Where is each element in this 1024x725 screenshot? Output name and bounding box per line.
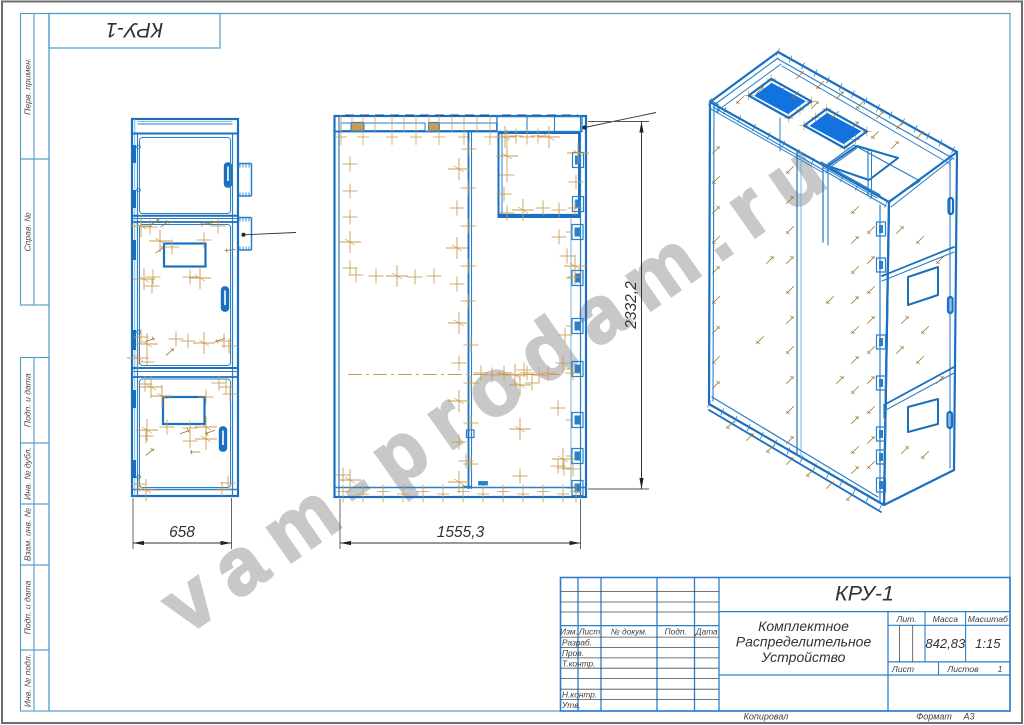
svg-text:Инв. № подл.: Инв. № подл. [23, 654, 33, 707]
svg-text:Изм.: Изм. [560, 626, 578, 636]
svg-text:Взам. инв. №: Взам. инв. № [23, 508, 33, 561]
svg-text:Т.контр.: Т.контр. [562, 658, 595, 668]
svg-text:Справ. №: Справ. № [23, 212, 33, 251]
svg-text:Перв. примен.: Перв. примен. [23, 58, 33, 115]
svg-text:Подп. и дата: Подп. и дата [23, 580, 33, 634]
svg-text:Подп. и дата: Подп. и дата [23, 373, 33, 427]
svg-text:Пров.: Пров. [562, 648, 584, 658]
svg-text:Дата: Дата [695, 626, 718, 636]
svg-text:842,83: 842,83 [925, 636, 966, 651]
svg-text:А3: А3 [962, 712, 974, 722]
svg-text:Листов: Листов [946, 664, 979, 674]
svg-text:№ докум.: № докум. [611, 626, 648, 636]
svg-text:Разраб.: Разраб. [562, 638, 592, 648]
svg-text:Устройство: Устройство [761, 649, 846, 665]
svg-text:1: 1 [998, 664, 1003, 674]
svg-text:Масштаб: Масштаб [968, 614, 1009, 624]
svg-text:Комплектное: Комплектное [758, 618, 849, 634]
svg-text:Утв.: Утв. [561, 700, 581, 710]
svg-text:658: 658 [169, 524, 195, 541]
svg-text:Подп.: Подп. [665, 626, 687, 636]
svg-text:Копировал: Копировал [744, 712, 789, 722]
svg-text:1555,3: 1555,3 [437, 524, 485, 541]
svg-text:Лит.: Лит. [895, 614, 916, 624]
svg-text:КРУ-1: КРУ-1 [106, 18, 164, 41]
svg-text:1:15: 1:15 [975, 636, 1001, 651]
svg-text:Лист: Лист [578, 626, 600, 636]
svg-text:Формат: Формат [916, 712, 952, 722]
svg-text:Масса: Масса [933, 614, 959, 624]
svg-text:Инв. № дубл.: Инв. № дубл. [23, 447, 33, 500]
svg-text:2332,2: 2332,2 [623, 281, 640, 330]
svg-text:Н.контр.: Н.контр. [562, 689, 597, 699]
svg-text:Лист: Лист [891, 664, 914, 674]
svg-text:КРУ-1: КРУ-1 [835, 582, 894, 606]
svg-text:Распределительное: Распределительное [736, 634, 872, 650]
